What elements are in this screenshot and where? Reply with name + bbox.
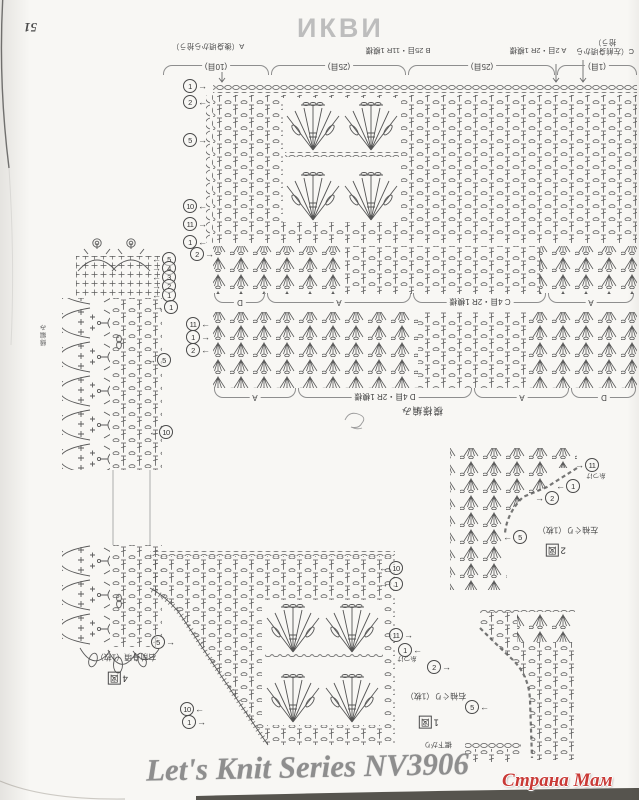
row-marker-b1: 11← <box>186 317 210 331</box>
row-number: 10 <box>159 425 173 439</box>
work-direction-arrow: → <box>198 220 207 229</box>
section-label-a-right: A 2目・2R 1模様 <box>490 46 586 55</box>
figure-number: 2 <box>561 545 566 556</box>
row-number: 11 <box>186 317 200 331</box>
row-marker-g1: →11 <box>575 458 599 472</box>
band1-brace-1: D <box>214 293 265 303</box>
work-direction-arrow: ← <box>503 533 512 542</box>
work-direction-arrow: → <box>201 333 210 342</box>
row-marker-h1: 11→ <box>389 628 413 642</box>
row-marker-h4: 5← <box>465 700 489 714</box>
work-direction-arrow: → <box>404 631 413 640</box>
band2-brace-1: A <box>214 388 296 398</box>
work-direction-arrow: → <box>535 494 544 503</box>
work-direction-arrow: ← <box>149 428 158 437</box>
row-number: 1 <box>566 479 580 493</box>
work-direction-arrow: ← <box>201 320 210 329</box>
figure-number: 1 <box>434 717 439 728</box>
band1-brace-2: A <box>267 293 411 303</box>
row-marker-t1: 1→ <box>183 79 207 93</box>
figure-char-box: 図 <box>546 544 559 557</box>
work-direction-arrow: → <box>575 461 584 470</box>
row-marker-g3: →2 <box>535 491 559 505</box>
figure-char-box: 図 <box>108 672 121 685</box>
row-marker-t5: 11→ <box>183 217 207 231</box>
book-title: Let's Knit Series NV3906 <box>146 745 495 788</box>
row-number: 5 <box>465 700 479 714</box>
row-number: 1 <box>183 79 197 93</box>
row-marker-h3: 2→ <box>427 660 451 674</box>
band-label: A <box>585 298 596 307</box>
band2-brace-3: A <box>474 388 569 398</box>
work-direction-arrow: ← <box>413 646 422 655</box>
row-marker-t4: 10← <box>183 199 207 213</box>
band2-brace-2: D 4目・2R 1模様 <box>298 388 472 398</box>
work-direction-arrow: ← <box>152 291 161 300</box>
row-number: 10 <box>180 702 194 716</box>
work-direction-arrow: → <box>205 250 214 259</box>
site-credit: Страна Мам <box>502 770 613 792</box>
section-label-a-left: A（後身頃から拾う） <box>158 42 258 51</box>
work-direction-arrow: → <box>154 303 163 312</box>
band-label: C 4目・2R 1模様 <box>446 296 513 307</box>
work-direction-arrow: → <box>442 663 451 672</box>
chart-2-left-armhole <box>450 448 577 590</box>
row-number: 1 <box>164 300 178 314</box>
count-brace-2: (25目) <box>271 65 406 75</box>
band-strip-1 <box>213 246 637 294</box>
work-direction-arrow: ← <box>480 703 489 712</box>
work-direction-arrow: → <box>197 718 206 727</box>
row-number: 11 <box>183 217 197 231</box>
row-marker-h2: 1← <box>398 643 422 657</box>
page-number: 51 <box>24 19 37 35</box>
row-number: 2 <box>545 491 559 505</box>
work-direction-arrow: → <box>379 580 388 589</box>
chart1-caption: 右袖ぐり（1枚） <box>398 691 474 701</box>
work-direction-arrow: ← <box>198 238 207 247</box>
work-direction-arrow: ← <box>201 346 210 355</box>
band-label: A <box>516 393 527 402</box>
row-marker-g4: ←5 <box>503 530 527 544</box>
band1-brace-4: A <box>548 293 634 303</box>
pencil-scribble <box>345 413 364 429</box>
chart2-note: 糸つけ <box>581 471 611 479</box>
band-label: A <box>333 298 344 307</box>
work-direction-arrow: ← <box>379 564 388 573</box>
stitch-count: (1目) <box>585 61 609 72</box>
row-marker-b3: 2← <box>186 343 210 357</box>
row-number: 5 <box>183 133 197 147</box>
stitch-count: (25目) <box>324 61 352 72</box>
work-direction-arrow: ← <box>556 482 565 491</box>
crochet-diagram-art <box>0 0 639 800</box>
row-number: 1 <box>398 643 412 657</box>
row-marker-e3: ←10 <box>149 425 173 439</box>
row-number: 2 <box>190 247 204 261</box>
chart2-caption: 左袖ぐり（1枚） <box>530 525 606 535</box>
row-number: 5 <box>157 353 171 367</box>
row-number: 2 <box>183 95 197 109</box>
row-marker-t3: 5→ <box>183 133 207 147</box>
band2-brace-4: D <box>571 388 636 398</box>
work-direction-arrow: ← <box>198 202 207 211</box>
row-marker-f3: 1→ <box>182 715 206 729</box>
row-number: 2 <box>427 660 441 674</box>
section-label-b: B 25目・11R 1模様 <box>348 46 448 55</box>
section-label-c: C（左前身頃から拾う） <box>574 38 636 56</box>
work-direction-arrow: → <box>166 638 175 647</box>
band1-brace-3: C 4目・2R 1模様 <box>413 293 546 303</box>
figure-number: 4 <box>123 673 128 684</box>
work-direction-arrow: → <box>198 136 207 145</box>
row-marker-s0: 2→ <box>190 247 214 261</box>
row-number: 2 <box>186 343 200 357</box>
stitch-count: (10目) <box>202 61 230 72</box>
row-marker-f1: 5→ <box>151 635 175 649</box>
scanned-pattern-page: ИКВИ 51 A（後身頃から拾う） B 25目・11R 1模様 A 2目・2R… <box>0 0 639 800</box>
edging-strip <box>62 239 162 545</box>
site-watermark: ИКВИ <box>297 13 384 44</box>
row-number: 1 <box>389 577 403 591</box>
chart4-caption: 右前身頃（1枚） <box>88 652 164 662</box>
figure-label-1: 1 図 <box>419 716 439 729</box>
figure-label-4: 4 図 <box>108 672 128 685</box>
figure-char-box: 図 <box>419 716 432 729</box>
chart-1-right-armhole <box>480 608 575 760</box>
row-marker-e1: →1 <box>154 300 178 314</box>
work-direction-arrow: → <box>198 82 207 91</box>
figure-label-2: 2 図 <box>546 544 566 557</box>
band-label: D <box>598 393 610 402</box>
row-marker-f2: 10← <box>180 702 204 716</box>
edging-caption: 縁編み <box>40 292 50 346</box>
top-chart <box>206 60 637 243</box>
row-number: 1 <box>186 330 200 344</box>
work-direction-arrow: ← <box>195 705 204 714</box>
row-number: 11 <box>585 458 599 472</box>
row-marker-b2: 1→ <box>186 330 210 344</box>
band-label: D 4目・2R 1模様 <box>351 391 418 402</box>
row-number: 10 <box>389 561 403 575</box>
work-direction-arrow: → <box>147 356 156 365</box>
row-marker-f4: ←10 <box>379 561 403 575</box>
row-number: 1 <box>182 715 196 729</box>
pattern-stitch-caption: 模様編み <box>384 404 460 415</box>
row-number: 11 <box>389 628 403 642</box>
stitch-count: (25目) <box>467 61 495 72</box>
band-label: A <box>249 393 260 402</box>
row-marker-t2: 2← <box>183 95 207 109</box>
count-brace-1: (10目) <box>163 65 269 75</box>
band-label: D <box>234 298 246 307</box>
row-number: 5 <box>151 635 165 649</box>
row-marker-g2: ←1 <box>556 479 580 493</box>
row-number: 10 <box>183 199 197 213</box>
count-brace-4: (1目) <box>557 65 637 75</box>
row-marker-e2: →5 <box>147 353 171 367</box>
count-brace-3: (25目) <box>408 65 555 75</box>
row-marker-f5: →1 <box>379 577 403 591</box>
row-number: 5 <box>513 530 527 544</box>
band-strip-2 <box>213 312 637 388</box>
work-direction-arrow: ← <box>198 98 207 107</box>
